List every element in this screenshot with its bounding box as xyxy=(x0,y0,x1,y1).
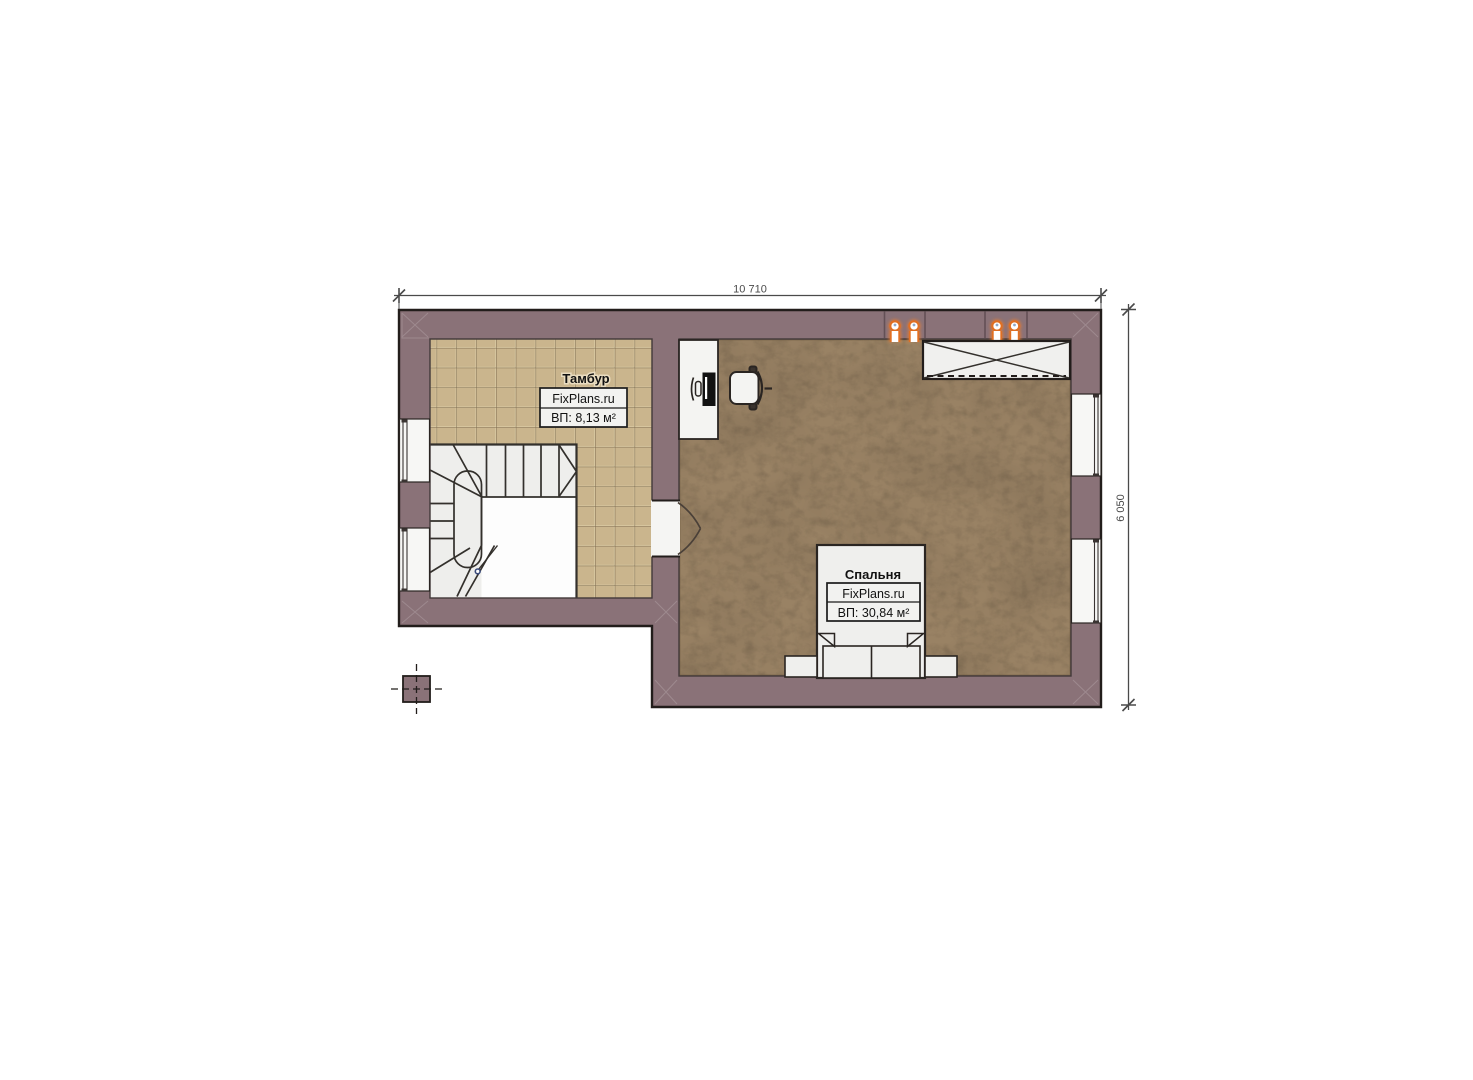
svg-text:ВП: 30,84 м²: ВП: 30,84 м² xyxy=(838,606,910,620)
svg-text:FixPlans.ru: FixPlans.ru xyxy=(842,587,905,601)
svg-text:FixPlans.ru: FixPlans.ru xyxy=(552,392,615,406)
svg-text:10 710: 10 710 xyxy=(733,284,767,296)
svg-text:Спальня: Спальня xyxy=(845,567,901,582)
svg-text:Тамбур: Тамбур xyxy=(562,371,609,386)
svg-text:6 050: 6 050 xyxy=(1115,494,1127,522)
svg-text:ВП: 8,13 м²: ВП: 8,13 м² xyxy=(551,411,616,425)
